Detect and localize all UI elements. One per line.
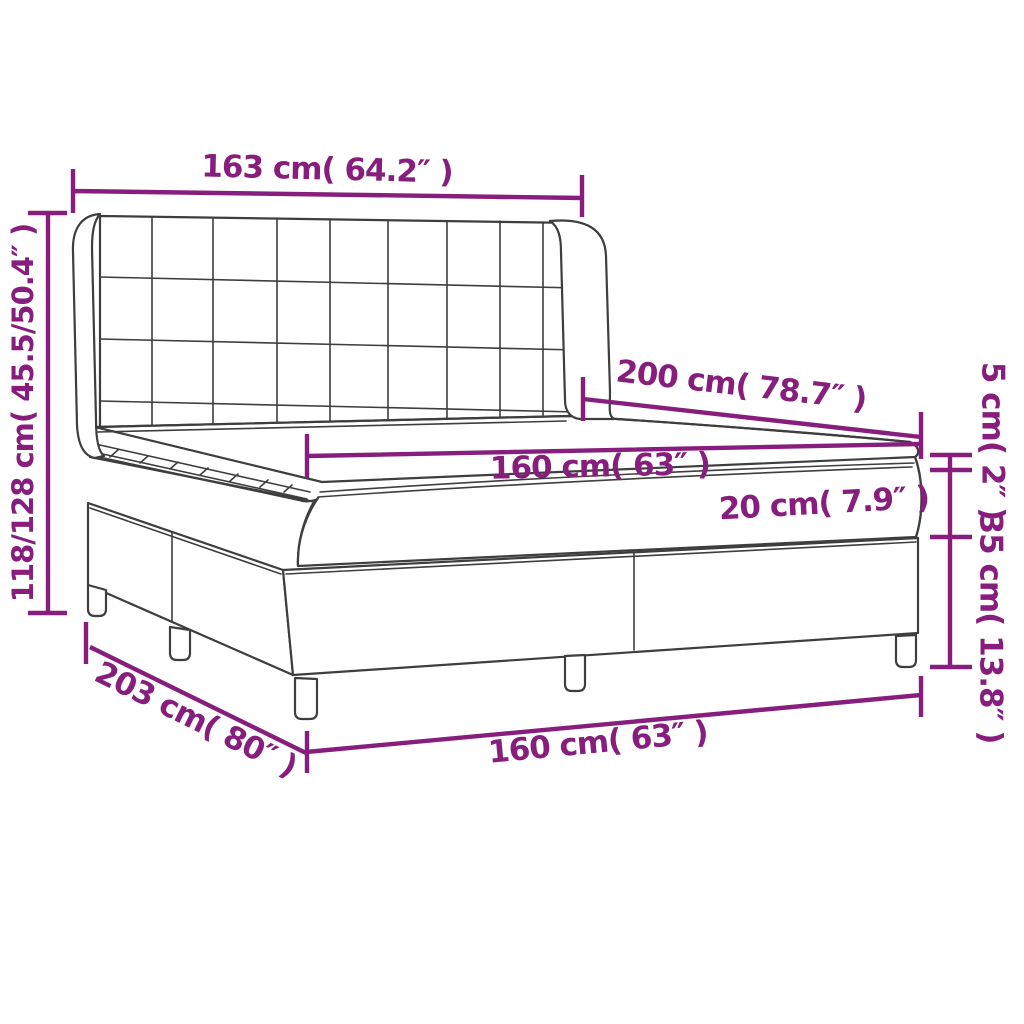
box-spring-bed-diagram-svg: 163 cm( 64.2″ ) 118/128 cm( 45.5/50.4″ )… (0, 0, 1024, 1024)
headboard-panel (100, 216, 578, 430)
bed-leg (88, 585, 106, 616)
dimension-overall-height-label: 118/128 cm( 45.5/50.4″ ) (6, 224, 40, 603)
dimension-base-height-label: 35 cm( 13.8″ ) (973, 513, 1009, 744)
bed-leg (295, 678, 317, 719)
dimension-headboard-width-label: 163 cm( 64.2″ ) (201, 148, 453, 190)
bed-leg (565, 655, 585, 691)
dimension-base-width-label: 160 cm( 63″ ) (487, 714, 710, 771)
dimension-diagram: 163 cm( 64.2″ ) 118/128 cm( 45.5/50.4″ )… (0, 0, 1024, 1024)
dimension-right-vertical: 5 cm( 2″ ) 35 cm( 13.8″ ) (930, 362, 1011, 744)
dimension-base-width: 160 cm( 63″ ) (306, 676, 921, 771)
dimension-topper-height-label: 5 cm( 2″ ) (975, 362, 1011, 520)
dimension-mattress-width-label: 160 cm( 63″ ) (490, 446, 711, 487)
bed-leg (170, 627, 190, 660)
bed-leg (896, 635, 916, 667)
dimension-right-vertical-line (930, 455, 972, 667)
dimension-overall-length-label: 203 cm( 80″ ) (89, 655, 302, 785)
dimension-overall-height: 118/128 cm( 45.5/50.4″ ) (6, 213, 67, 613)
dimension-headboard-width: 163 cm( 64.2″ ) (73, 148, 582, 217)
